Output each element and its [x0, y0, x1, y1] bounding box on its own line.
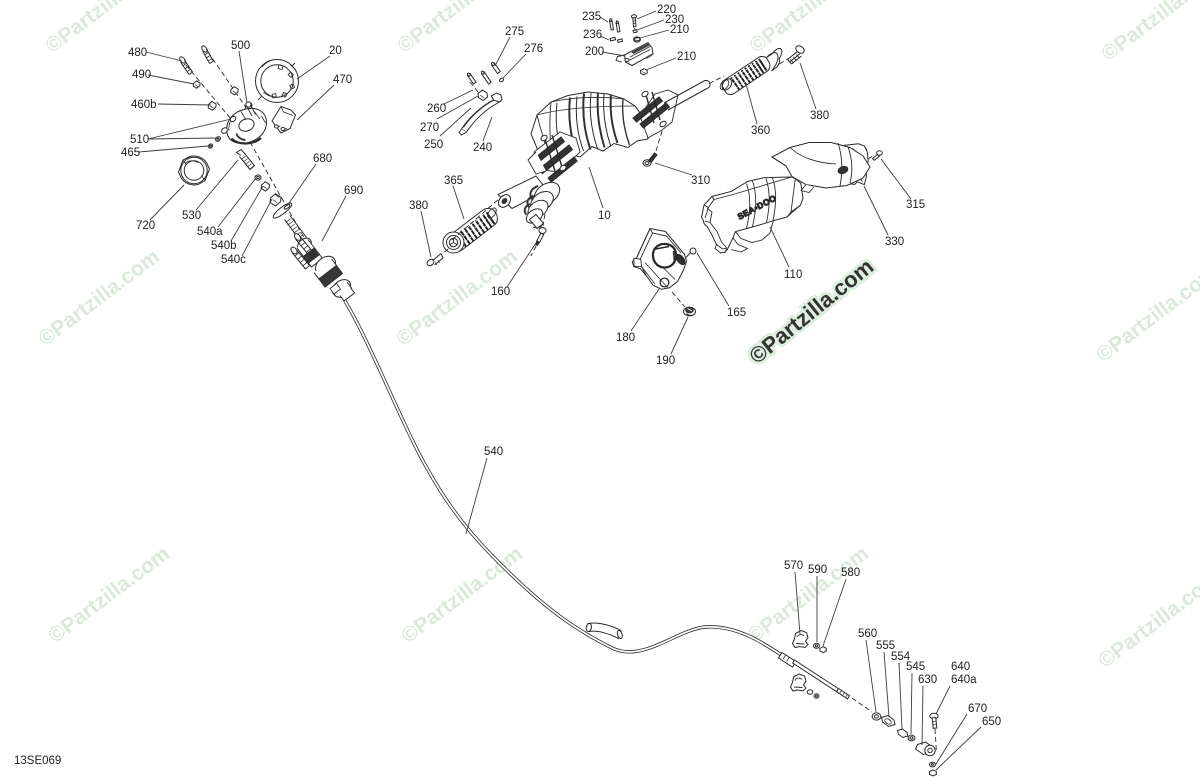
svg-text:315: 315: [906, 199, 925, 211]
svg-text:580: 580: [841, 567, 860, 579]
svg-text:275: 275: [505, 26, 524, 38]
svg-text:250: 250: [424, 139, 443, 151]
svg-text:236: 236: [583, 29, 602, 41]
svg-text:365: 365: [444, 175, 463, 187]
svg-text:690: 690: [344, 185, 363, 197]
svg-text:110: 110: [784, 269, 802, 281]
svg-text:276: 276: [524, 43, 543, 55]
svg-text:240: 240: [473, 142, 492, 154]
svg-text:235: 235: [582, 11, 601, 23]
svg-text:180: 180: [616, 332, 635, 344]
svg-text:640a: 640a: [951, 674, 977, 686]
svg-text:10: 10: [598, 210, 611, 222]
svg-text:460b: 460b: [131, 99, 157, 111]
svg-text:720: 720: [136, 220, 155, 232]
svg-text:545: 545: [906, 661, 925, 673]
svg-text:500: 500: [231, 40, 250, 52]
svg-text:480: 480: [128, 47, 147, 59]
svg-text:640: 640: [951, 661, 970, 673]
svg-text:630: 630: [918, 674, 937, 686]
svg-text:360: 360: [751, 125, 770, 137]
svg-text:570: 570: [784, 560, 803, 572]
svg-text:590: 590: [808, 564, 827, 576]
svg-text:560: 560: [858, 628, 877, 640]
svg-text:510: 510: [130, 134, 149, 146]
svg-text:13SE069: 13SE069: [14, 755, 61, 767]
svg-text:160: 160: [491, 286, 510, 298]
svg-text:680: 680: [313, 153, 332, 165]
svg-text:540b: 540b: [211, 240, 237, 252]
svg-text:530: 530: [182, 210, 201, 222]
svg-text:670: 670: [968, 703, 987, 715]
svg-text:270: 270: [420, 122, 439, 134]
svg-text:200: 200: [585, 46, 604, 58]
svg-text:20: 20: [329, 45, 342, 57]
svg-text:380: 380: [810, 110, 829, 122]
svg-text:210: 210: [670, 24, 689, 36]
svg-text:210: 210: [677, 51, 696, 63]
svg-text:190: 190: [656, 355, 675, 367]
svg-text:540: 540: [484, 446, 503, 458]
svg-text:470: 470: [333, 74, 352, 86]
svg-text:380: 380: [409, 200, 428, 212]
svg-text:310: 310: [691, 175, 710, 187]
svg-text:330: 330: [885, 236, 904, 248]
svg-text:650: 650: [982, 716, 1001, 728]
svg-text:260: 260: [427, 103, 446, 115]
svg-text:165: 165: [727, 307, 746, 319]
svg-text:540a: 540a: [197, 226, 223, 238]
svg-text:465: 465: [121, 147, 140, 159]
